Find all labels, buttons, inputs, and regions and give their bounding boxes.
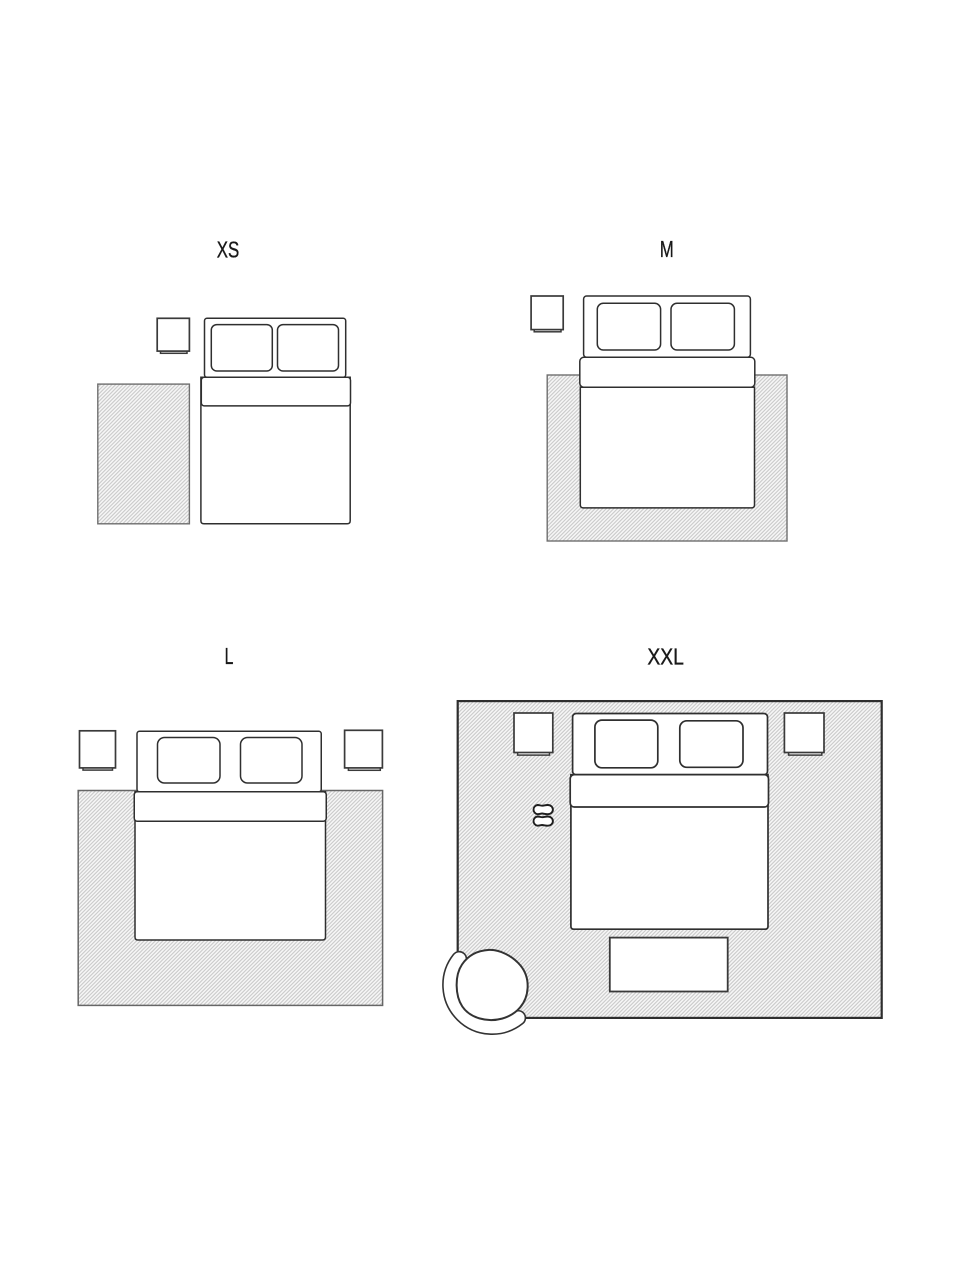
svg-text:XS: XS xyxy=(217,237,240,263)
svg-text:L: L xyxy=(225,643,234,669)
svg-text:XXL: XXL xyxy=(647,643,684,669)
svg-text:M: M xyxy=(660,236,674,262)
